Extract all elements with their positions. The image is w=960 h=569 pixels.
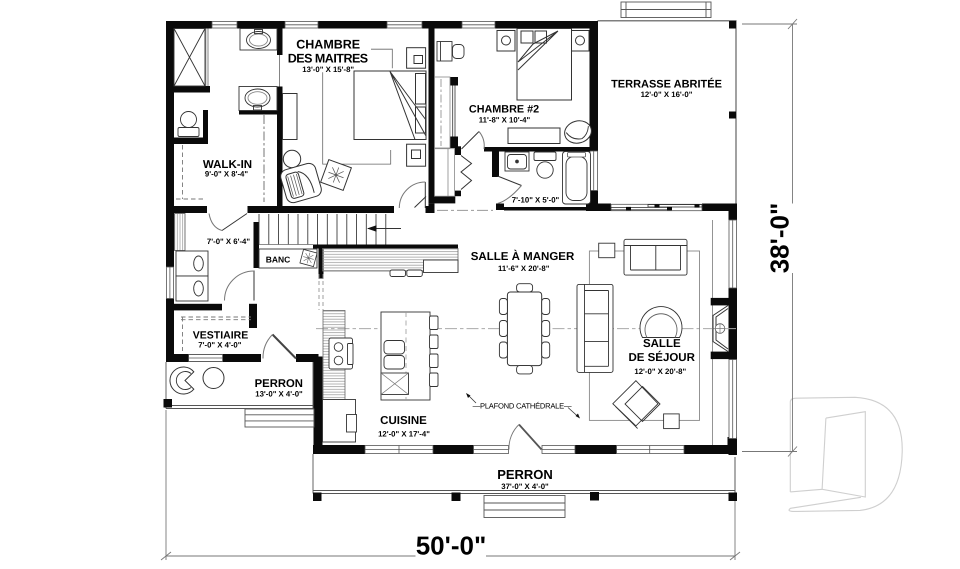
svg-text:PERRON: PERRON bbox=[497, 467, 553, 482]
svg-text:—PLAFOND CATHÉDRALE—: —PLAFOND CATHÉDRALE— bbox=[473, 402, 572, 411]
svg-text:DE SÉJOUR: DE SÉJOUR bbox=[628, 350, 695, 364]
svg-text:TERRASSE ABRITÉE: TERRASSE ABRITÉE bbox=[611, 78, 722, 91]
svg-text:11'-6" X 20'-8": 11'-6" X 20'-8" bbox=[498, 264, 550, 273]
svg-text:CUISINE: CUISINE bbox=[380, 415, 427, 427]
svg-text:9'-0" X 8'-4": 9'-0" X 8'-4" bbox=[205, 170, 248, 179]
svg-text:DES MAITRES: DES MAITRES bbox=[288, 52, 368, 66]
svg-text:12'-0" X 16'-0": 12'-0" X 16'-0" bbox=[641, 90, 693, 99]
svg-text:11'-8" X 10'-4": 11'-8" X 10'-4" bbox=[479, 116, 531, 125]
svg-text:7'-0" X 4'-0": 7'-0" X 4'-0" bbox=[198, 341, 241, 350]
svg-text:BANC: BANC bbox=[266, 255, 291, 265]
svg-text:12'-0" X 20'-8": 12'-0" X 20'-8" bbox=[634, 367, 686, 376]
svg-text:50'-0": 50'-0" bbox=[416, 531, 487, 561]
svg-text:12'-0" X 17'-4": 12'-0" X 17'-4" bbox=[378, 430, 430, 439]
svg-text:SALLE: SALLE bbox=[643, 338, 681, 350]
svg-text:13'-0" X 15'-8": 13'-0" X 15'-8" bbox=[302, 65, 354, 74]
svg-text:7'-0" X 6'-4": 7'-0" X 6'-4" bbox=[207, 237, 250, 246]
svg-text:37'-0" X 4'-0": 37'-0" X 4'-0" bbox=[501, 482, 549, 491]
svg-text:CHAMBRE #2: CHAMBRE #2 bbox=[469, 104, 539, 116]
svg-text:PERRON: PERRON bbox=[255, 378, 303, 390]
svg-text:SALLE À MANGER: SALLE À MANGER bbox=[471, 249, 575, 263]
svg-text:13'-0" X 4'-0": 13'-0" X 4'-0" bbox=[255, 390, 303, 399]
svg-text:38'-0": 38'-0" bbox=[765, 203, 795, 274]
svg-text:CHAMBRE: CHAMBRE bbox=[296, 38, 360, 52]
svg-text:7'-10" X 5'-0": 7'-10" X 5'-0" bbox=[512, 195, 560, 204]
